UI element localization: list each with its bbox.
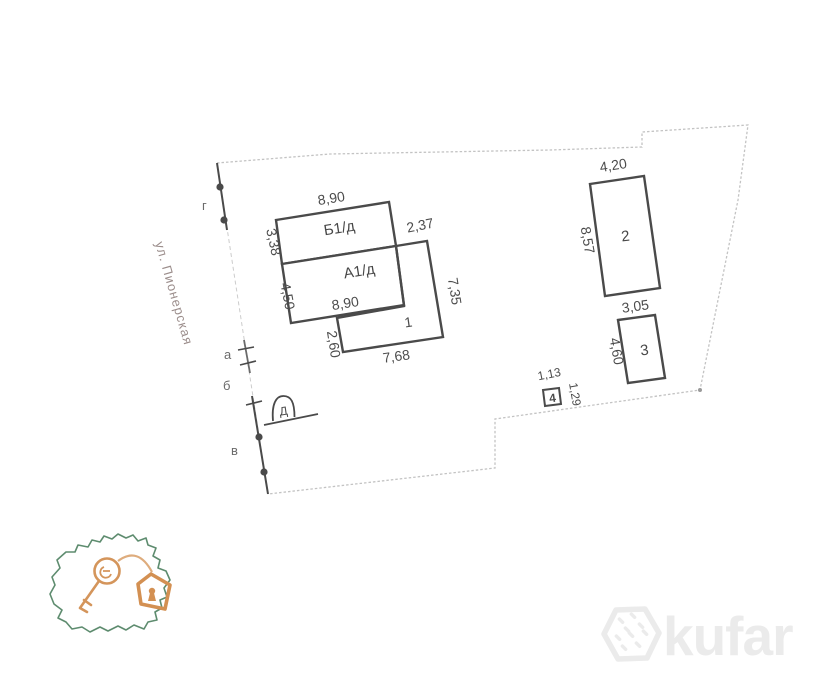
boundary-segment-bottom — [252, 396, 268, 494]
building-1-label: 1 — [403, 314, 413, 331]
well-symbol: Д — [264, 396, 318, 425]
boundary-point-label-g: г — [202, 198, 207, 213]
survey-point-dot — [220, 216, 227, 223]
well-symbol-letter: Д — [278, 404, 288, 419]
survey-point-dot — [698, 388, 702, 392]
keyring-icon — [118, 556, 152, 572]
kufar-watermark: kufar — [604, 605, 793, 667]
dimension-label-1-top: 2,37 — [405, 215, 435, 236]
boundary-point-label-a: а — [224, 347, 232, 362]
building-4: 4 1,13 1,29 — [536, 365, 583, 407]
keyhole-slot-icon — [148, 593, 156, 601]
dimension-label-1-left: 2,60 — [324, 330, 344, 360]
survey-point-dot — [216, 183, 223, 190]
dimension-label-3-top: 3,05 — [621, 296, 650, 316]
dimension-label-2-top: 4,20 — [599, 155, 629, 175]
building-3: 3 3,05 4,60 — [607, 296, 665, 383]
belarus-map-logo-icon — [50, 534, 170, 632]
boundary-point-label-b: б — [223, 378, 230, 393]
survey-point-dot — [260, 468, 267, 475]
dimension-label-4-right: 1,29 — [566, 382, 584, 408]
boundary-segment-middle — [244, 340, 250, 373]
key-shaft-icon — [80, 581, 99, 612]
building-4-label: 4 — [548, 391, 557, 406]
kufar-wordmark-text: kufar — [663, 605, 793, 667]
survey-point-dot — [255, 433, 262, 440]
dimension-label-b1d-top: 8,90 — [317, 188, 347, 208]
dimension-label-1-right: 7,35 — [445, 277, 465, 307]
dimension-label-4-top: 1,13 — [536, 365, 562, 383]
boundary-point-label-v: в — [231, 443, 238, 458]
kufar-dice-dots-icon — [614, 612, 649, 652]
scanned-site-plan-page: г а б в ул. Пионерская Б1/д 8,90 3,38 А1… — [0, 0, 825, 690]
street-label: ул. Пионерская — [152, 240, 196, 347]
dimension-label-3-left: 4,60 — [607, 336, 628, 366]
key-bow-mark-icon — [100, 567, 111, 578]
building-2: 2 4,20 8,57 — [578, 155, 660, 296]
dimension-label-2-left: 8,57 — [578, 225, 599, 255]
site-plan-canvas: г а б в ул. Пионерская Б1/д 8,90 3,38 А1… — [0, 0, 825, 690]
dimension-label-1-bottom: 7,68 — [382, 346, 411, 366]
